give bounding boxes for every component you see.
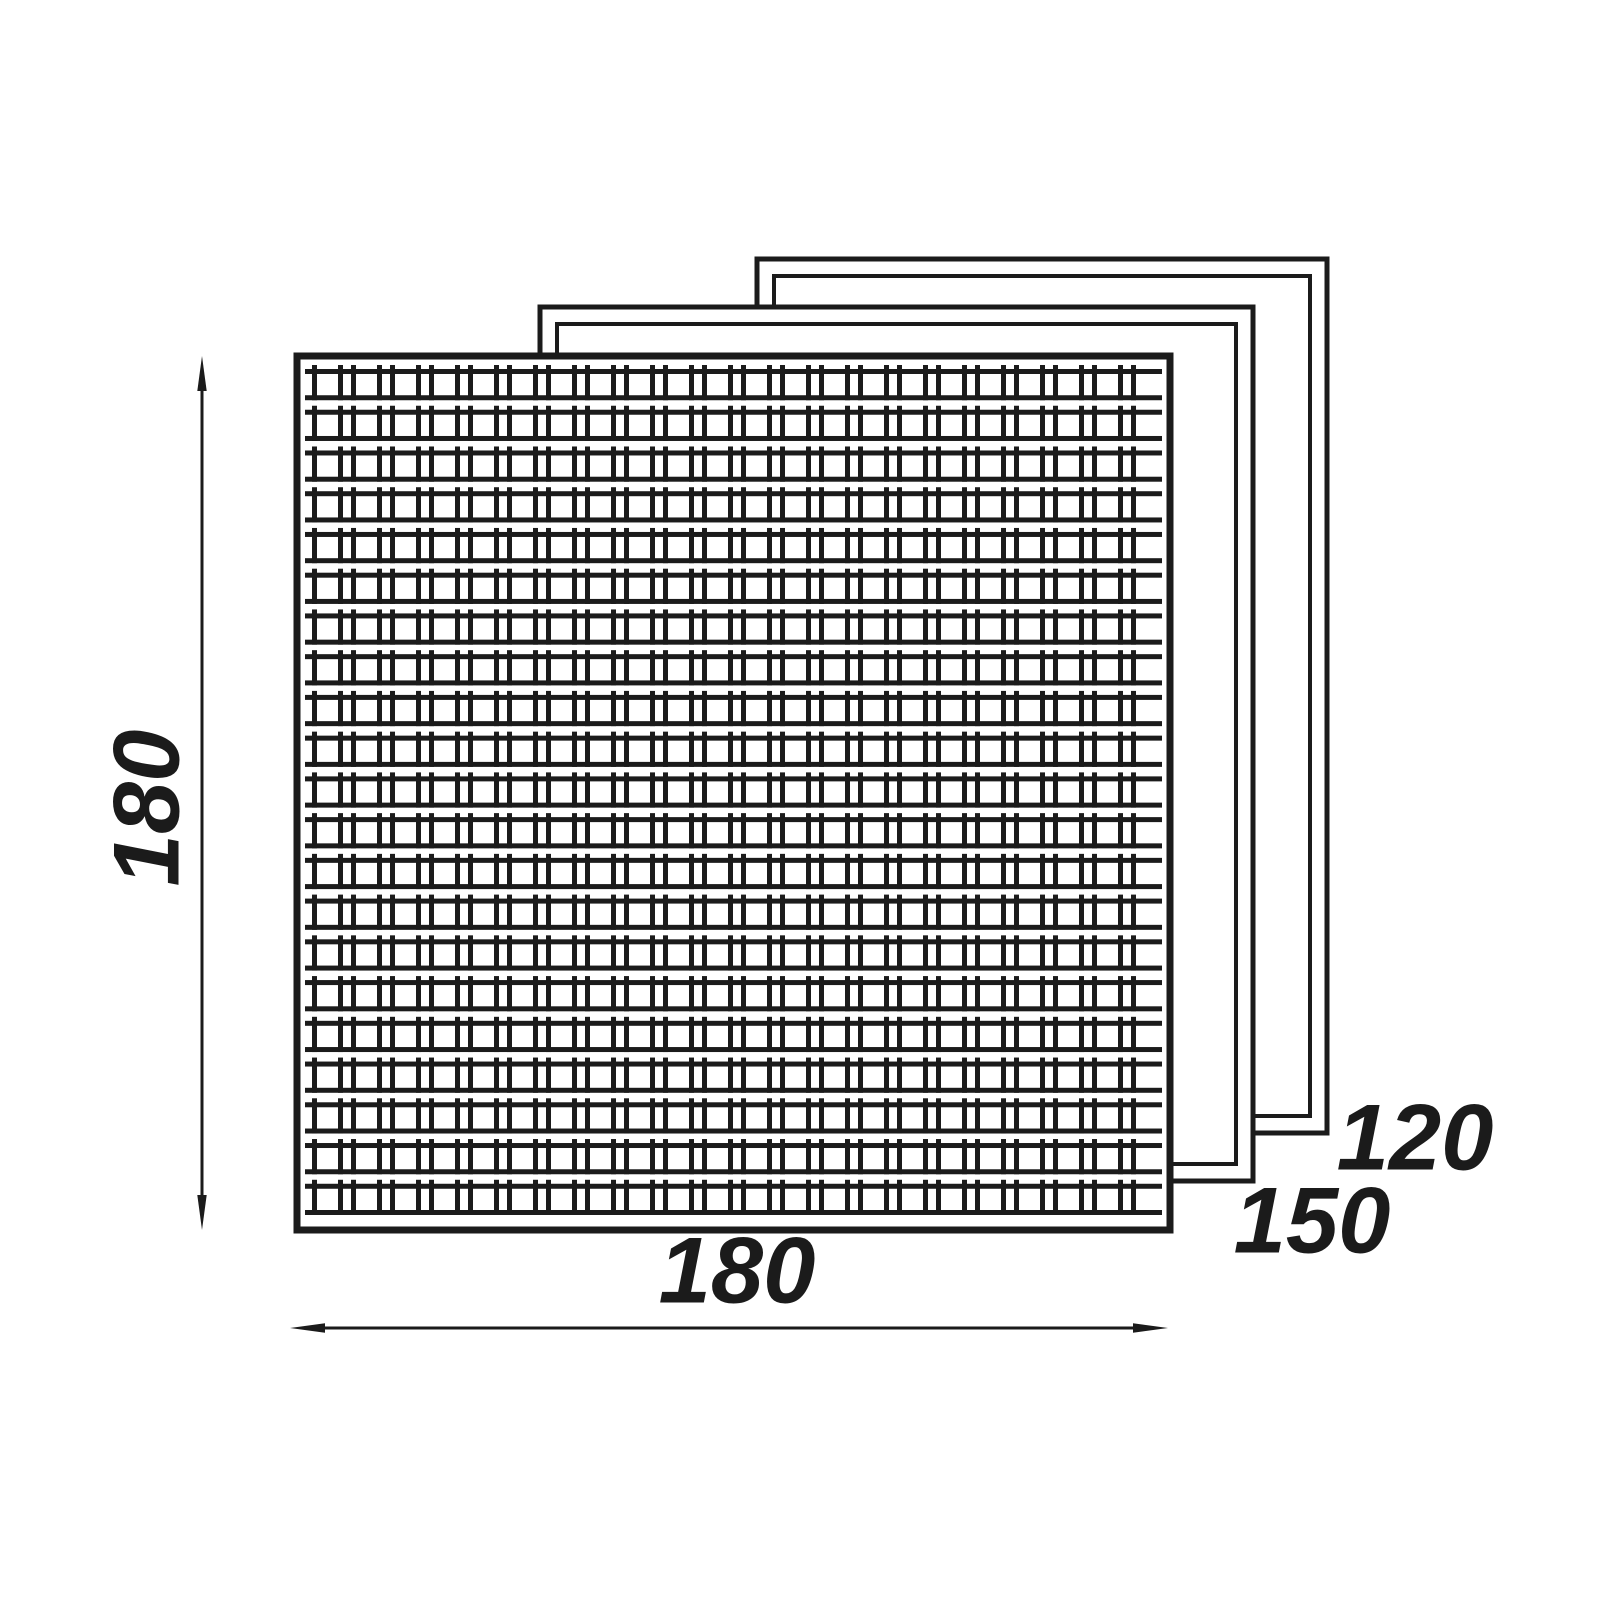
mesh-rail — [305, 1143, 1162, 1148]
mesh-rail — [305, 410, 1162, 415]
mesh-rail — [305, 980, 1162, 985]
mesh-rail — [305, 695, 1162, 700]
mesh-rail — [305, 1210, 1162, 1215]
middle-panel-label: 150 — [1234, 1168, 1391, 1273]
mesh-rail — [305, 736, 1162, 741]
mesh-rail — [305, 558, 1162, 563]
width-dimension: 180 — [290, 1218, 1168, 1333]
mesh-rail — [305, 369, 1162, 374]
mesh-rail — [305, 1129, 1162, 1134]
mesh-rail — [305, 1047, 1162, 1052]
mesh-rail — [305, 654, 1162, 659]
front-panel-border — [297, 356, 1170, 1230]
mesh-rail — [305, 803, 1162, 808]
mesh-rail — [305, 477, 1162, 482]
mesh-rail — [305, 1184, 1162, 1189]
mesh-rail — [305, 613, 1162, 618]
mesh-rail — [305, 776, 1162, 781]
mesh-rail — [305, 966, 1162, 971]
mesh-rail — [305, 680, 1162, 685]
mesh-rail — [305, 532, 1162, 537]
arrow-right-icon — [1133, 1323, 1168, 1332]
mesh-rail — [305, 762, 1162, 767]
mesh-rail — [305, 1102, 1162, 1107]
height-dimension: 180 — [94, 356, 207, 1230]
dimension-drawing-canvas: 180 180 120 150 — [0, 0, 1600, 1600]
panel-dimension-drawing: 180 180 120 150 — [0, 0, 1600, 1600]
arrow-up-icon — [197, 356, 206, 391]
mesh-rail — [305, 939, 1162, 944]
mesh-rail — [305, 843, 1162, 848]
width-label: 180 — [659, 1218, 816, 1323]
mesh-rail — [305, 573, 1162, 578]
mesh-rail — [305, 721, 1162, 726]
height-label: 180 — [94, 730, 199, 887]
mesh-rail — [305, 1021, 1162, 1026]
mesh-rail — [305, 817, 1162, 822]
mesh-rail — [305, 491, 1162, 496]
arrow-down-icon — [197, 1195, 206, 1230]
mesh-rail — [305, 436, 1162, 441]
mesh-rail — [305, 1006, 1162, 1011]
mesh-rail — [305, 1062, 1162, 1067]
mesh-rail — [305, 450, 1162, 455]
mesh-rail — [305, 599, 1162, 604]
mesh-rail — [305, 517, 1162, 522]
mesh-rail — [305, 925, 1162, 930]
front-mesh-panel — [297, 356, 1170, 1230]
mesh-rail — [305, 395, 1162, 400]
mesh-rail — [305, 1169, 1162, 1174]
mesh-rail — [305, 884, 1162, 889]
mesh-rail — [305, 899, 1162, 904]
mesh-rail — [305, 1088, 1162, 1093]
mesh-rail — [305, 640, 1162, 645]
arrow-left-icon — [290, 1323, 325, 1332]
mesh-rail — [305, 858, 1162, 863]
